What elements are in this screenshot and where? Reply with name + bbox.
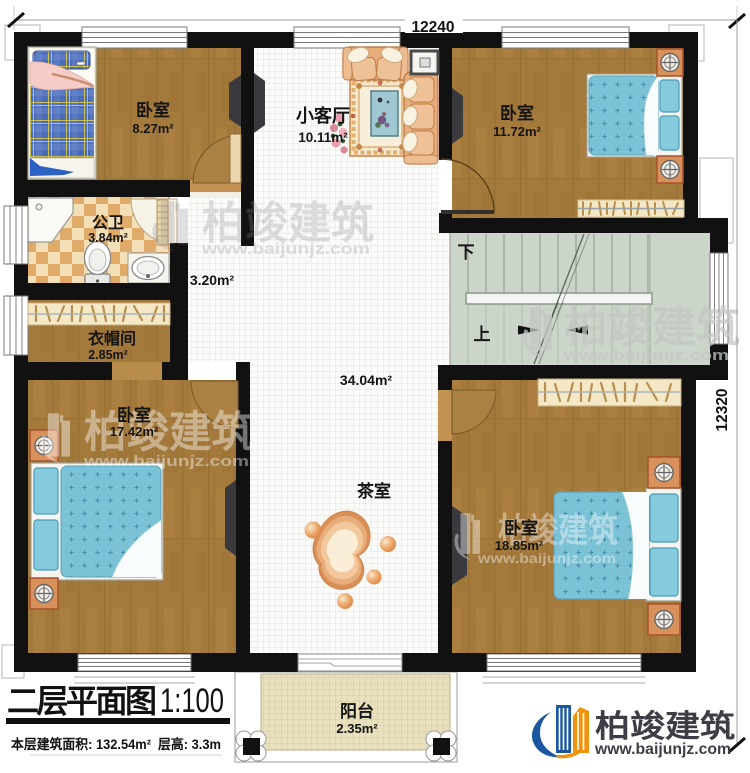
svg-text:卧室: 卧室 — [500, 103, 534, 123]
svg-text:上: 上 — [474, 325, 491, 344]
svg-text:2.85m²: 2.85m² — [88, 348, 128, 362]
svg-text:阳台: 阳台 — [340, 701, 374, 721]
svg-text:茶室: 茶室 — [357, 481, 391, 501]
svg-text:3.20m²: 3.20m² — [190, 272, 235, 288]
svg-text:12240: 12240 — [411, 19, 454, 36]
svg-text:www.baijunjz.com: www.baijunjz.com — [201, 241, 370, 258]
svg-text:2.35m²: 2.35m² — [336, 721, 378, 736]
svg-text:层高: 3.3m: 层高: 3.3m — [158, 736, 221, 752]
svg-text:本层建筑面积: 132.54m²: 本层建筑面积: 132.54m² — [11, 736, 151, 752]
svg-text:卧室: 卧室 — [504, 518, 538, 538]
svg-text:17.42m²: 17.42m² — [110, 424, 159, 439]
svg-text:柏竣建筑: 柏竣建筑 — [595, 709, 735, 744]
svg-text:18.85m²: 18.85m² — [495, 538, 544, 553]
svg-text:11.72m²: 11.72m² — [493, 124, 541, 139]
svg-text:小客厅: 小客厅 — [296, 105, 350, 126]
svg-text:10.11m²: 10.11m² — [298, 130, 348, 145]
svg-text:衣帽间: 衣帽间 — [88, 329, 136, 348]
svg-text:www.baijunjz.com: www.baijunjz.com — [83, 453, 249, 470]
svg-text:www.baijunjz.com: www.baijunjz.com — [563, 347, 729, 364]
svg-text:1:100: 1:100 — [160, 682, 224, 720]
svg-text:卧室: 卧室 — [117, 405, 151, 425]
svg-text:8.27m²: 8.27m² — [132, 121, 174, 136]
svg-text:卧室: 卧室 — [136, 100, 170, 120]
svg-text:公卫: 公卫 — [92, 214, 124, 232]
svg-text:柏竣建筑: 柏竣建筑 — [564, 304, 740, 352]
svg-text:下: 下 — [458, 243, 475, 262]
svg-text:二层平面图: 二层平面图 — [7, 683, 157, 719]
svg-text:www.baijunjz.com: www.baijunjz.com — [594, 741, 731, 758]
svg-text:12320: 12320 — [714, 388, 731, 431]
svg-text:34.04m²: 34.04m² — [340, 372, 392, 388]
svg-text:3.84m²: 3.84m² — [88, 231, 128, 245]
